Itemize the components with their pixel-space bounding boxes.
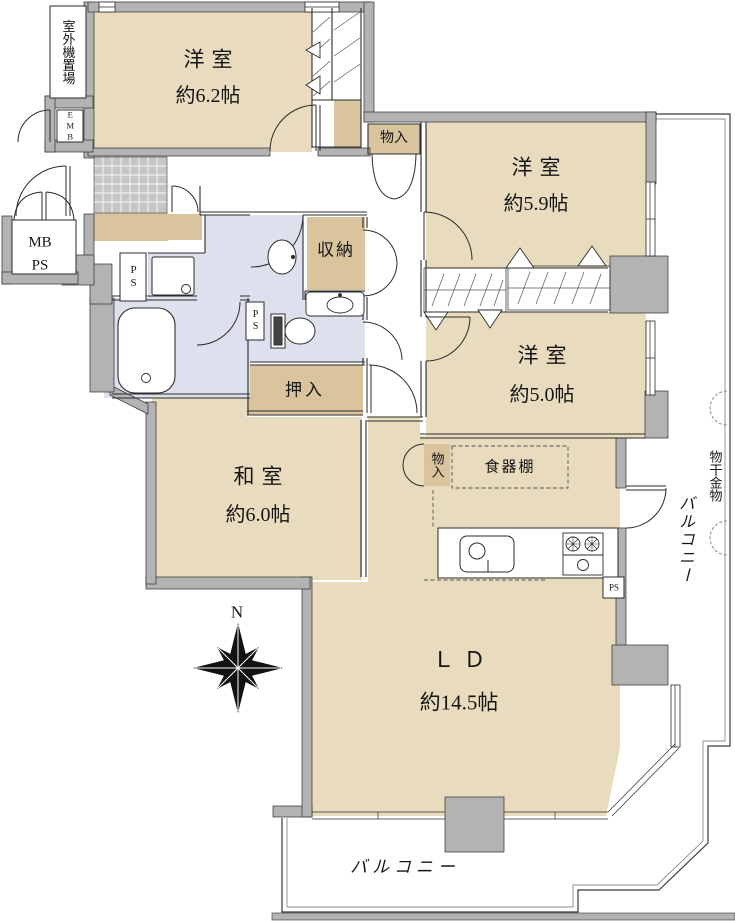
label-oshiire: 押入 bbox=[285, 382, 325, 399]
bathtub-icon bbox=[118, 308, 175, 393]
label-balcony-east: バルコニー bbox=[676, 495, 692, 585]
room-size-japanese: 約6.0帖 bbox=[226, 505, 291, 525]
room-name-western-5-0: 洋室 bbox=[511, 346, 574, 367]
pillar bbox=[445, 797, 504, 852]
washing-machine-icon bbox=[152, 257, 194, 295]
label-monoiri-kitchen: 物入 bbox=[431, 452, 444, 478]
label-emb: EMB bbox=[66, 110, 75, 143]
room-name-living-dining: ＬＤ bbox=[423, 649, 494, 671]
washbasin-icon bbox=[268, 240, 296, 274]
room-name-japanese: 和室 bbox=[227, 467, 290, 488]
floor-plan: 洋室 約6.2帖 洋室 約5.9帖 洋室 約5.0帖 和室 約6.0帖 ＬＤ 約… bbox=[0, 0, 735, 921]
room-name-western-5-9: 洋室 bbox=[505, 158, 568, 179]
room-size-western-5-0: 約5.0帖 bbox=[510, 385, 575, 405]
room-name-western-6-2: 洋室 bbox=[177, 50, 240, 71]
floor-plan-drawing bbox=[0, 0, 735, 921]
pillar bbox=[612, 645, 668, 685]
compass-north-label: N bbox=[231, 604, 243, 621]
genkan-step bbox=[94, 213, 168, 241]
label-ps-toilet: PS bbox=[250, 309, 260, 333]
label-balcony-south: バルコニー bbox=[350, 859, 460, 876]
kitchen-counter bbox=[438, 528, 618, 578]
compass-icon bbox=[193, 623, 283, 713]
label-ps-kitchen: PS bbox=[609, 584, 619, 593]
label-laundry-hardware: 物干金物 bbox=[709, 450, 722, 502]
label-monoiri-hall: 物入 bbox=[380, 132, 408, 146]
toilet-basin-icon bbox=[306, 292, 364, 316]
label-outdoor-unit-space: 室外機置場 bbox=[62, 20, 75, 85]
western-room-6-2-floor bbox=[92, 8, 314, 152]
balcony-south-edge-wall bbox=[272, 913, 735, 920]
room-size-western-6-2: 約6.2帖 bbox=[176, 86, 241, 106]
label-cupboard: 食器棚 bbox=[484, 461, 535, 476]
stove-icon bbox=[563, 533, 603, 575]
entrance-door bbox=[16, 166, 70, 216]
label-ps-mb: PS bbox=[32, 259, 49, 274]
genkan-tile bbox=[94, 157, 167, 213]
label-mb: MB bbox=[28, 236, 51, 251]
room-size-western-5-9: 約5.9帖 bbox=[504, 194, 569, 214]
room-fills bbox=[92, 8, 646, 816]
kitchen-sink-icon bbox=[460, 536, 514, 572]
room-size-living-dining: 約14.5帖 bbox=[420, 693, 499, 714]
window-ld-east bbox=[671, 685, 680, 747]
western-room-5-0-floor bbox=[426, 312, 646, 438]
pillar bbox=[610, 256, 668, 313]
label-ps-washroom: PS bbox=[128, 264, 139, 290]
label-shuno: 収納 bbox=[317, 242, 355, 259]
